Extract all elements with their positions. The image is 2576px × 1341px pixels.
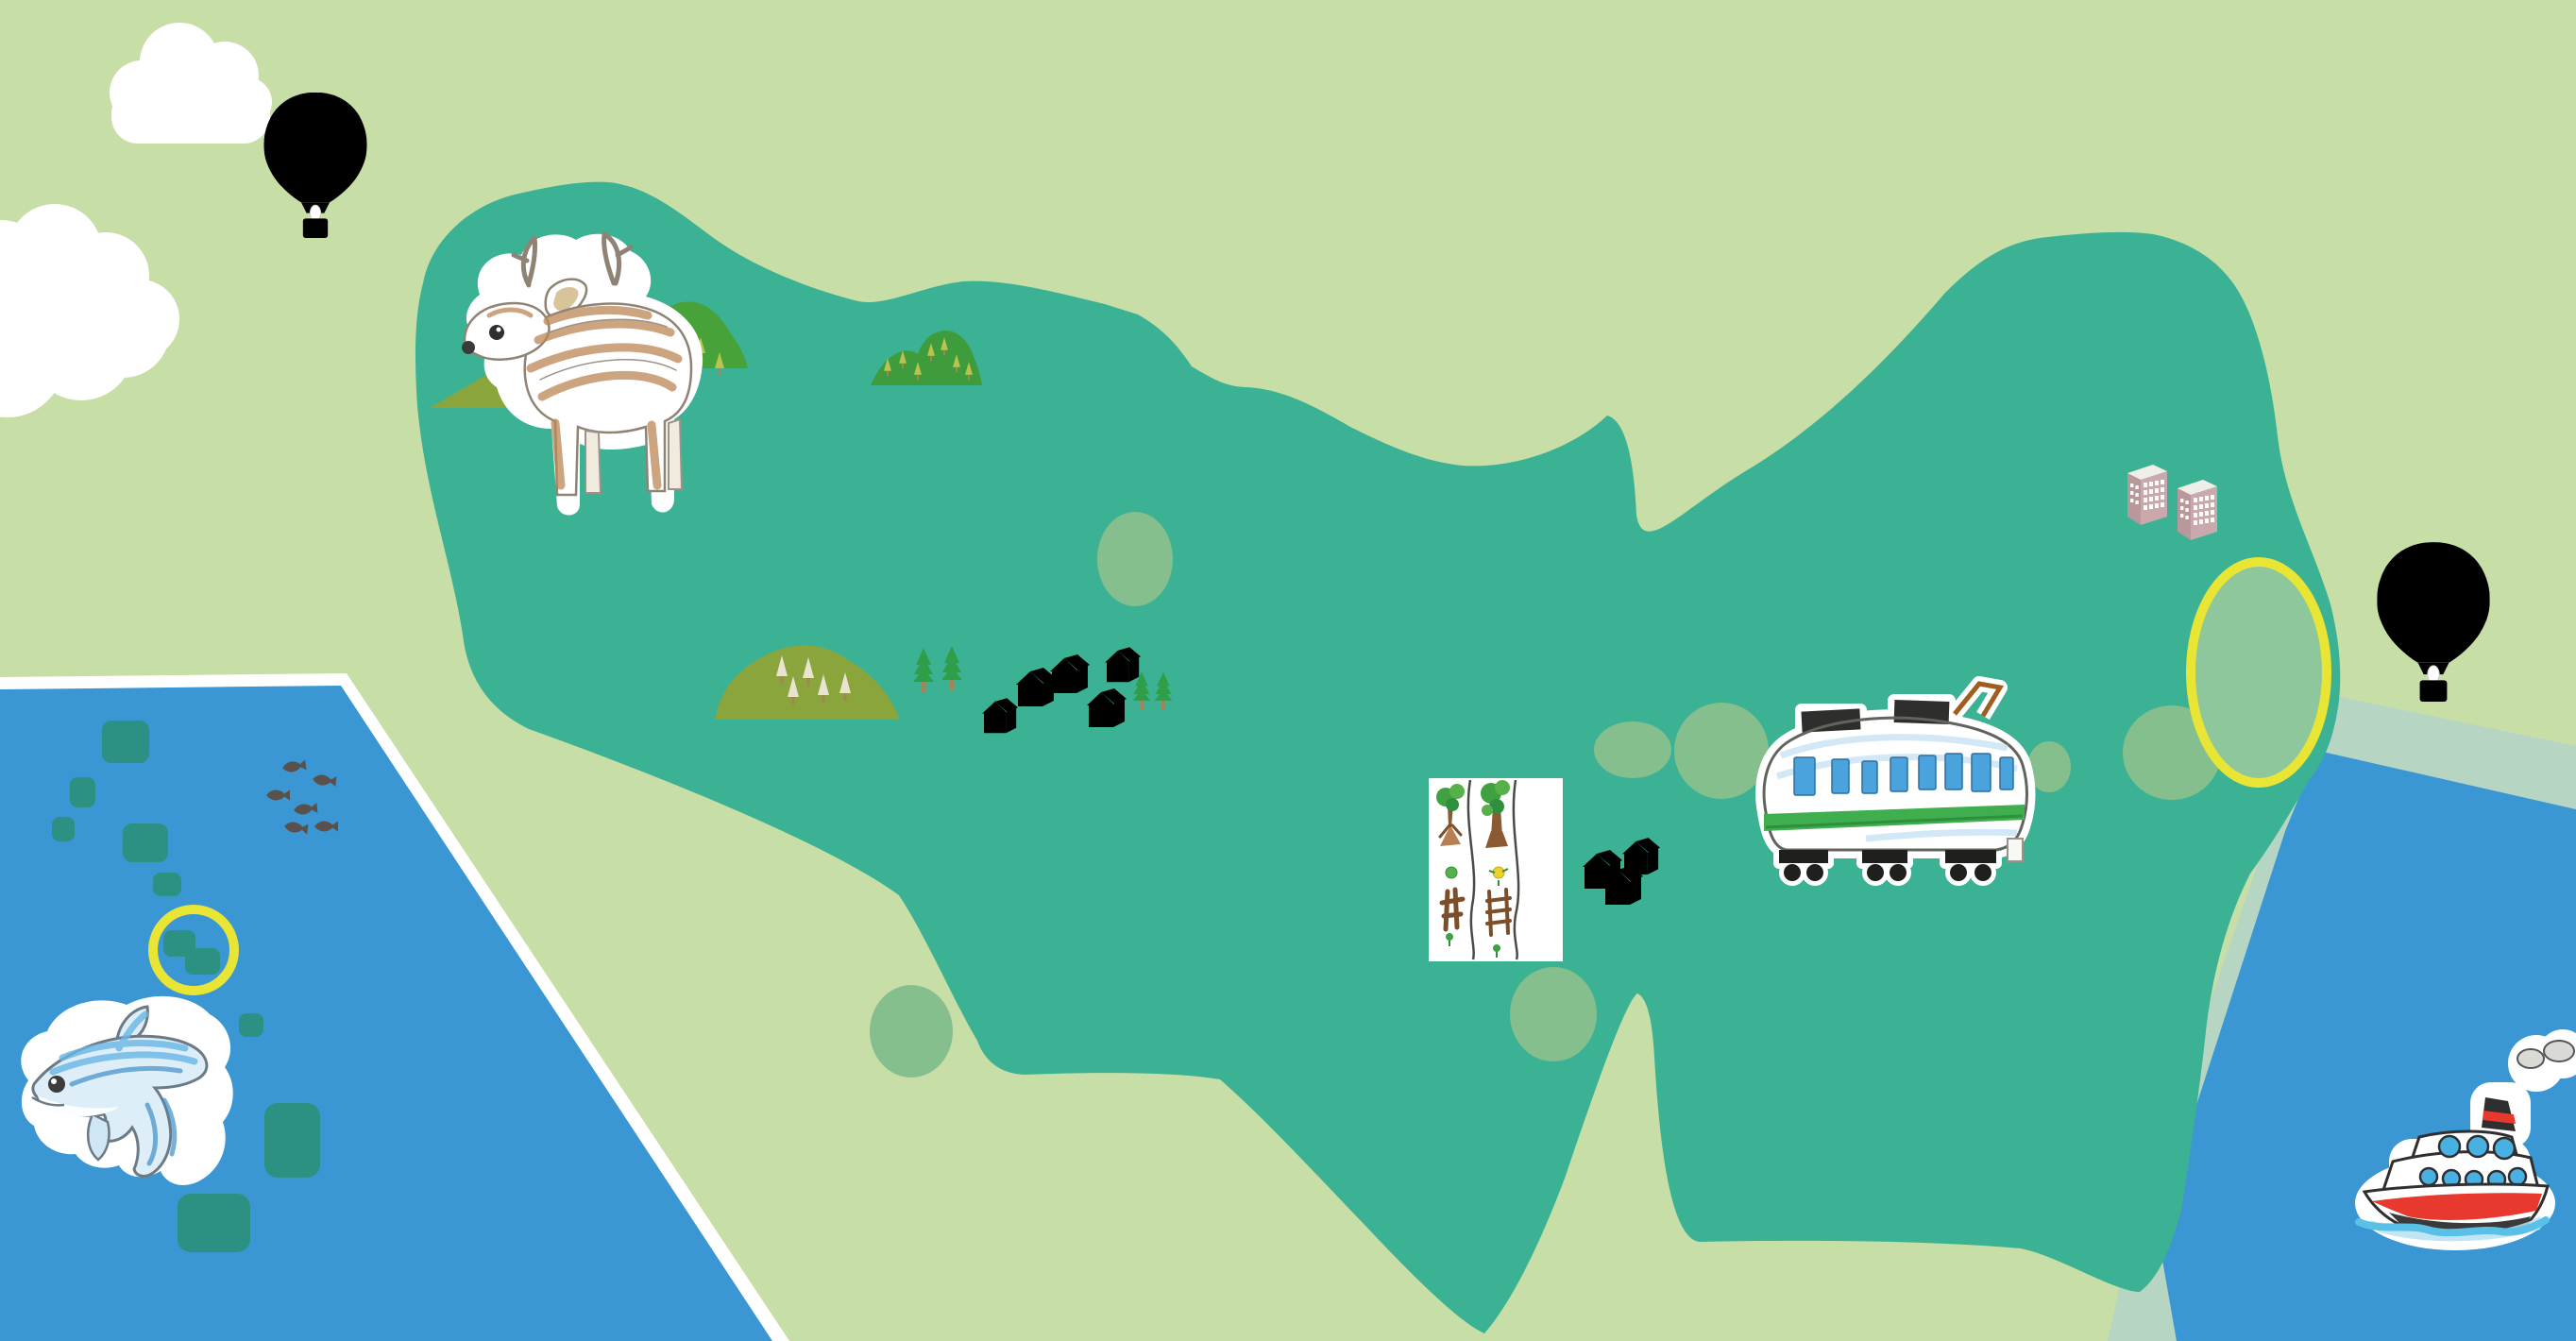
deer-eye — [489, 325, 504, 340]
stepping-stone — [178, 1194, 250, 1252]
stepping-stone — [153, 873, 181, 896]
stepping-stone — [70, 777, 95, 807]
stepping-stone — [239, 1013, 263, 1037]
land-markers — [2191, 562, 2327, 783]
smoke-puff — [2544, 1041, 2574, 1061]
land-patch — [1594, 721, 1671, 778]
land-patch — [1510, 967, 1597, 1061]
stepping-stone — [102, 721, 149, 763]
train-sticker[interactable] — [1764, 684, 2027, 881]
land-patch — [1097, 512, 1173, 606]
shark-eye — [48, 1076, 65, 1093]
land-highlight-ring[interactable] — [2191, 562, 2327, 783]
stepping-stone — [264, 1103, 320, 1178]
land-patch — [1674, 703, 1769, 799]
illustrated-map — [0, 0, 2576, 1341]
deer-nose — [462, 341, 475, 354]
stepping-stone — [123, 823, 168, 862]
crayon-bush — [1446, 867, 1457, 878]
smoke-puff — [2517, 1049, 2544, 1068]
stepping-stone — [185, 948, 220, 975]
tree-drawing-card[interactable] — [1429, 778, 1563, 961]
land-patch — [870, 985, 953, 1078]
office-building-icon — [2178, 480, 2217, 540]
stepping-stone — [52, 817, 75, 841]
office-building-icon — [2127, 465, 2167, 525]
